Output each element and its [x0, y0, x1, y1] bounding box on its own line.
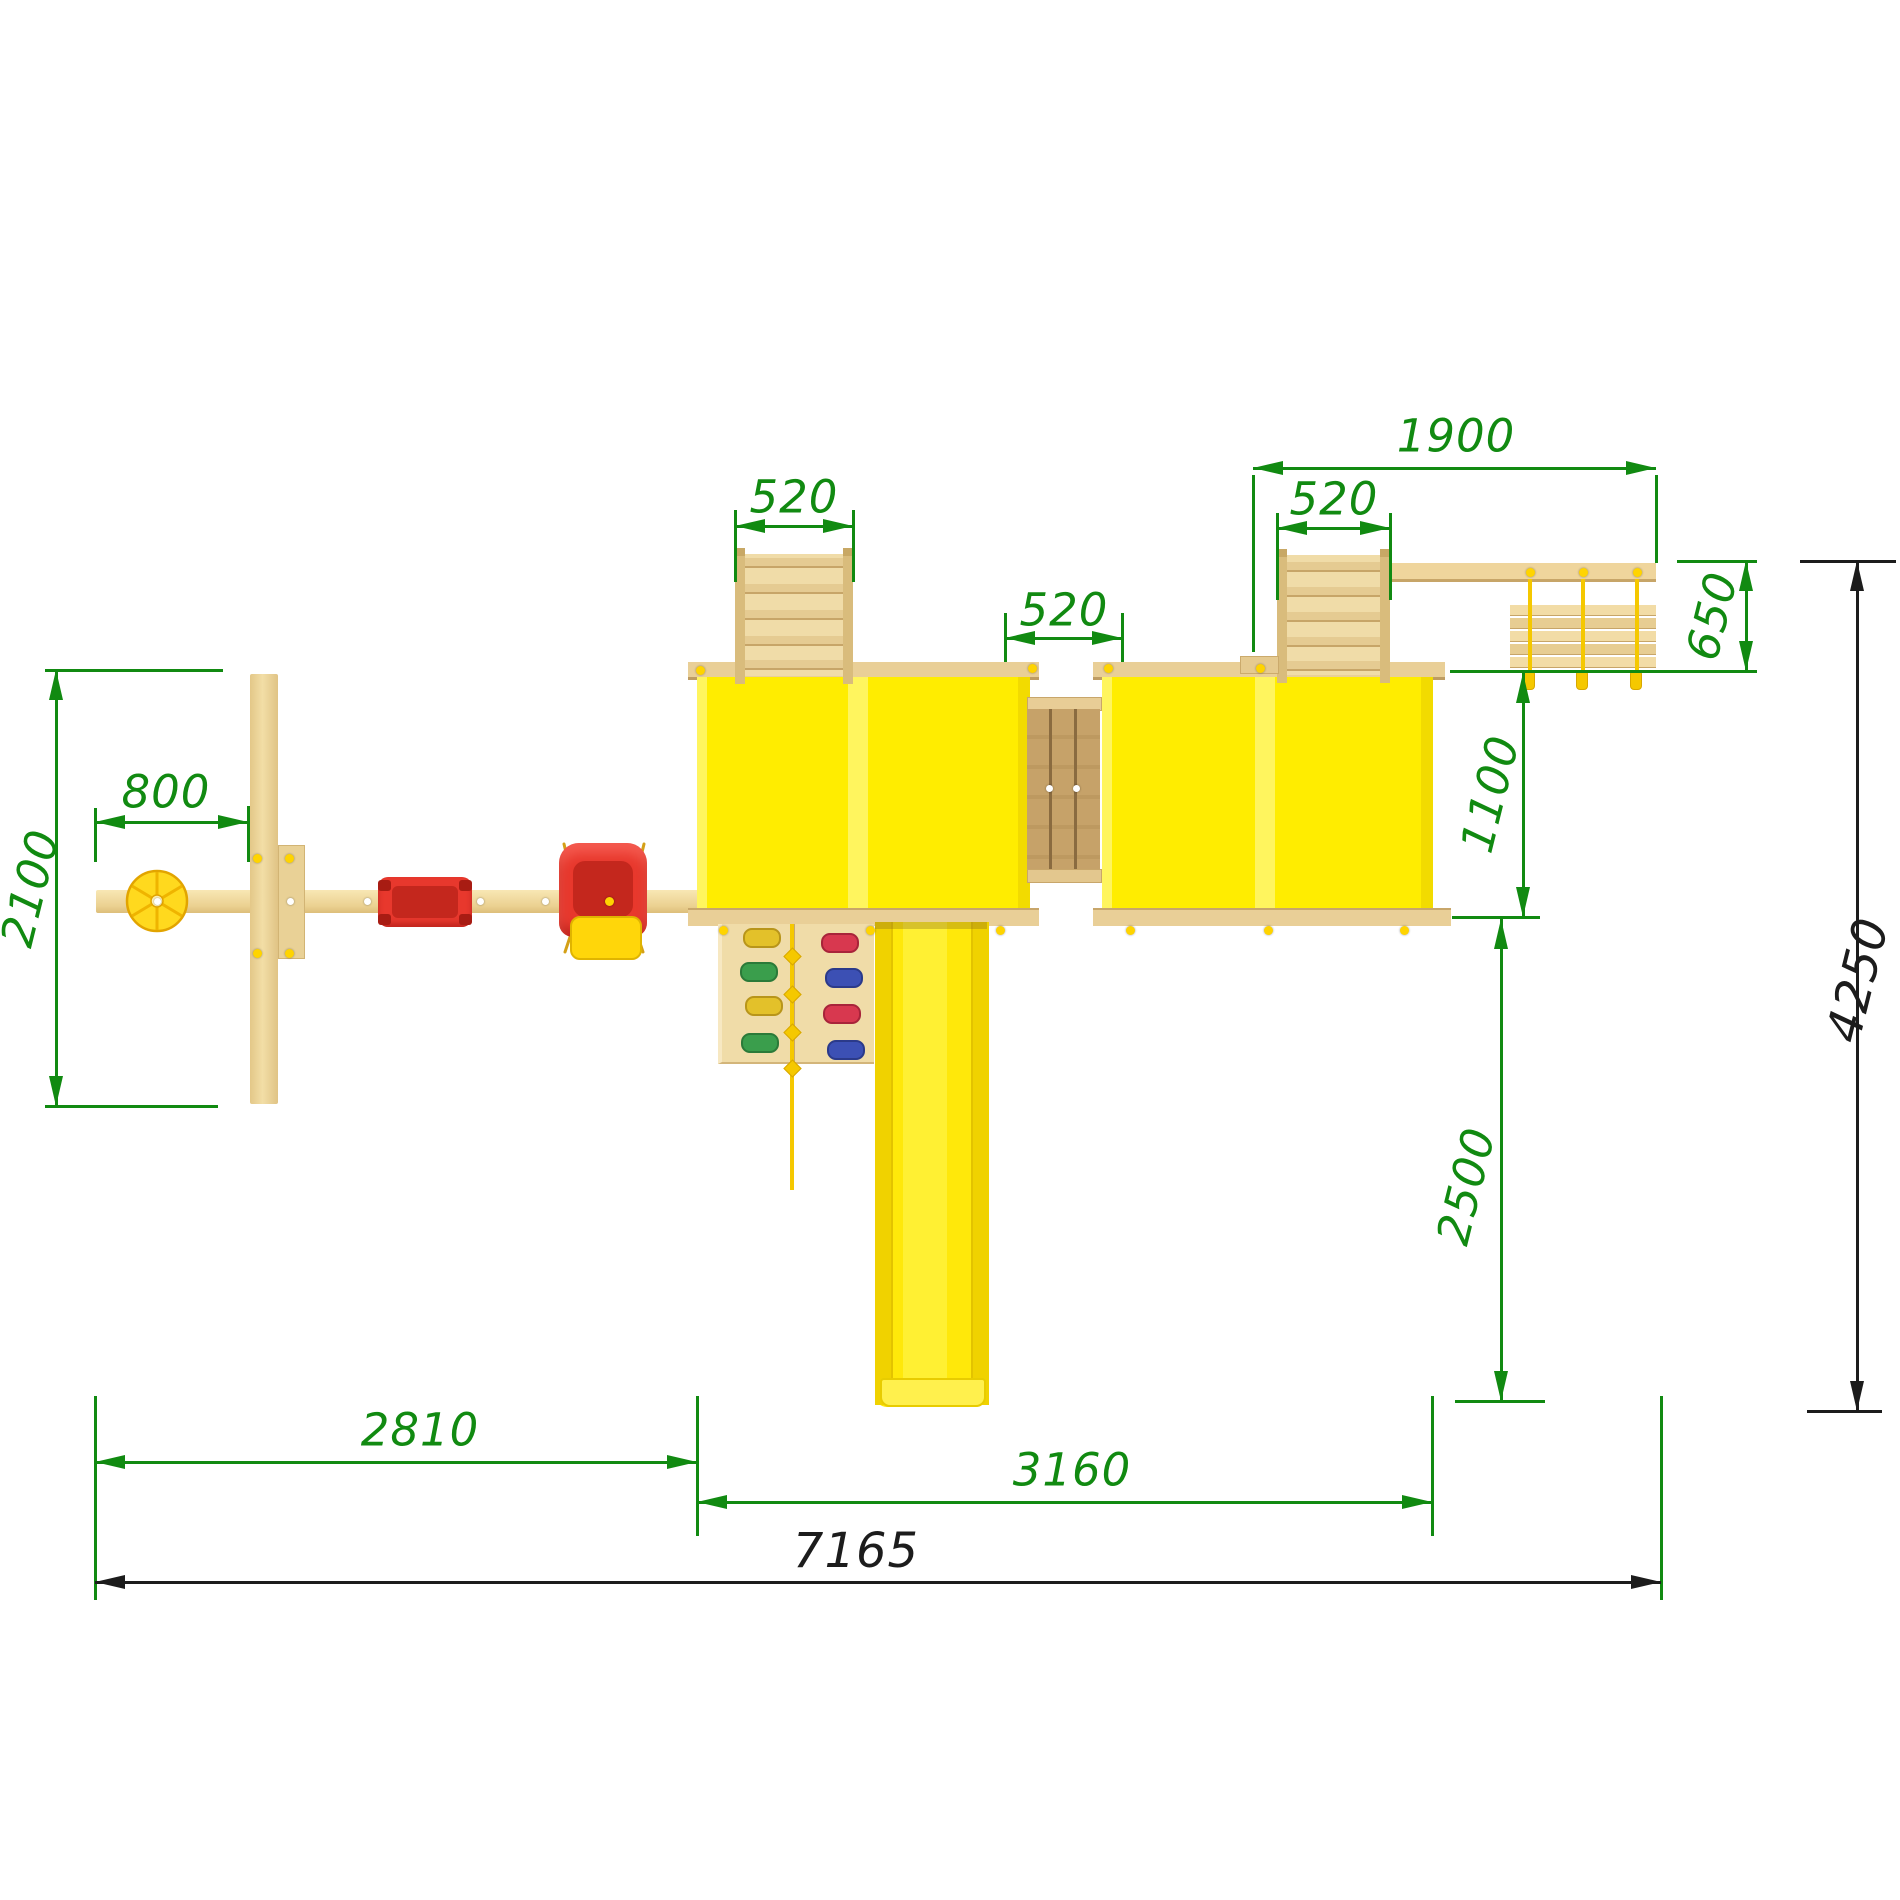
dim-2500-label: 2500 [1430, 1123, 1502, 1249]
dim-520-left-label: 520 [750, 475, 839, 520]
dim-7165-label: 7165 [793, 1527, 919, 1575]
dim-1900-line [1655, 475, 1658, 563]
dim-1100-line [1522, 671, 1525, 917]
dim-2810-line [94, 1396, 97, 1600]
dim-2100-arrow-down [49, 1076, 63, 1106]
dim-4250-line [1800, 560, 1896, 563]
dim-800-arrow-right [218, 815, 248, 829]
dim-650-line [1450, 670, 1757, 673]
dim-650-arrow-down [1739, 641, 1753, 671]
dim-4250-line [1807, 1410, 1882, 1413]
dim-3160-arrow-left [697, 1495, 727, 1509]
dim-2810-label: 2810 [361, 1408, 480, 1453]
dim-2810-arrow-left [95, 1455, 125, 1469]
dim-2500-arrow-up [1494, 919, 1508, 949]
dim-3160-line [1431, 1396, 1434, 1536]
dim-1900-arrow-left [1253, 461, 1283, 475]
dim-7165-arrow-right [1631, 1575, 1661, 1589]
dim-7165-line [95, 1581, 1661, 1584]
dim-4250-label: 4250 [1819, 913, 1896, 1047]
dim-800-arrow-left [95, 815, 125, 829]
dim-1900-label: 1900 [1397, 414, 1516, 459]
playground-plan-drawing: 2100800520520520190065011002500425028103… [0, 0, 1900, 1900]
dim-2810-line [95, 1461, 697, 1464]
dim-2100-line [45, 669, 223, 672]
dim-520-mid-label: 520 [1020, 588, 1109, 633]
dim-2500-arrow-down [1494, 1371, 1508, 1401]
dim-2100-arrow-up [49, 670, 63, 700]
dim-2100-line [45, 1105, 218, 1108]
dim-520-right-label: 520 [1290, 477, 1379, 522]
dim-2810-arrow-right [667, 1455, 697, 1469]
dim-1900-line [1252, 475, 1255, 652]
dim-7165-arrow-left [95, 1575, 125, 1589]
dim-1100-arrow-up [1516, 673, 1530, 703]
dim-650-label: 650 [1679, 567, 1744, 664]
dim-800-label: 800 [122, 770, 211, 815]
dim-3160-label: 3160 [1013, 1448, 1132, 1493]
dim-3160-line [697, 1501, 1432, 1504]
dim-1100-label: 1100 [1454, 731, 1526, 857]
dim-3160-arrow-right [1402, 1495, 1432, 1509]
dim-4250-arrow-up [1850, 561, 1864, 591]
dim-1100-arrow-down [1516, 887, 1530, 917]
dim-3160-line [1660, 1396, 1663, 1600]
dim-1900-line [1253, 467, 1656, 470]
dim-1900-arrow-right [1626, 461, 1656, 475]
dim-4250-arrow-down [1850, 1381, 1864, 1411]
